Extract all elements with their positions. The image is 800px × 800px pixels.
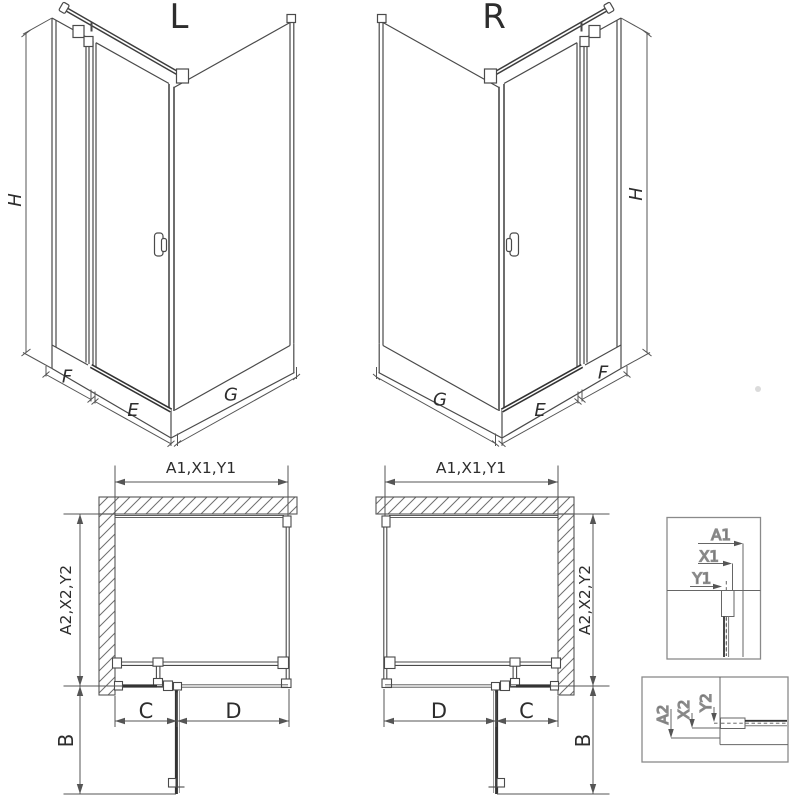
iso-right-drawing: R H G E F: [373, 0, 652, 447]
dim-label-h-left: H: [5, 193, 26, 207]
dim-label-a1-left-plan: A1,X1,Y1: [166, 459, 236, 477]
detail-label-y2: Y2: [697, 693, 715, 713]
detail-label-a1: A1: [711, 526, 731, 544]
shower-enclosure-technical-diagram: L H F E G R H G E F A1,X1,Y1 A2,X2,Y2 B …: [0, 0, 800, 800]
dim-label-d-right-plan: D: [431, 699, 447, 723]
dim-label-b-right-plan: B: [571, 734, 595, 748]
dim-label-f-right: F: [598, 363, 609, 384]
dim-label-g-left: G: [224, 385, 238, 406]
iso-left-drawing: L H F E G: [5, 0, 300, 447]
dim-label-c-right-plan: C: [519, 699, 534, 723]
detail-label-x1: X1: [699, 548, 719, 566]
plan-left-drawing: A1,X1,Y1 A2,X2,Y2 B C D: [54, 459, 297, 794]
dim-label-h-right: H: [626, 187, 647, 201]
dim-label-a2-right-plan: A2,X2,Y2: [576, 565, 594, 635]
dim-label-e-left: E: [127, 400, 139, 421]
wall-top-left-plan: [99, 497, 297, 514]
dim-label-d-left-plan: D: [225, 699, 241, 723]
dim-label-a2-left-plan: A2,X2,Y2: [57, 565, 75, 635]
wall-top-right-plan: [376, 497, 574, 514]
dim-label-e-right: E: [534, 400, 546, 421]
dim-label-c-left-plan: C: [139, 699, 154, 723]
plan-left-line-art: [64, 466, 292, 795]
dim-label-f-left: F: [62, 367, 73, 388]
plan-right-drawing: A1,X1,Y1 A2,X2,Y2 B D C: [376, 459, 610, 794]
variant-right-title: R: [482, 0, 506, 37]
dim-label-g-right: G: [433, 390, 447, 411]
detail-box-bottom: A2 X2 Y2: [642, 677, 788, 762]
detail-label-a2: A2: [654, 705, 672, 725]
dim-label-a1-right-plan: A1,X1,Y1: [436, 459, 506, 477]
iso-right-line-art: [373, 2, 652, 447]
dim-label-b-left-plan: B: [54, 734, 78, 748]
detail-label-x2: X2: [675, 700, 693, 720]
detail-label-y1: Y1: [692, 570, 712, 588]
variant-left-title: L: [170, 0, 189, 37]
detail-box-top: A1 X1 Y1: [667, 518, 761, 660]
watermark-dot: [755, 386, 761, 392]
